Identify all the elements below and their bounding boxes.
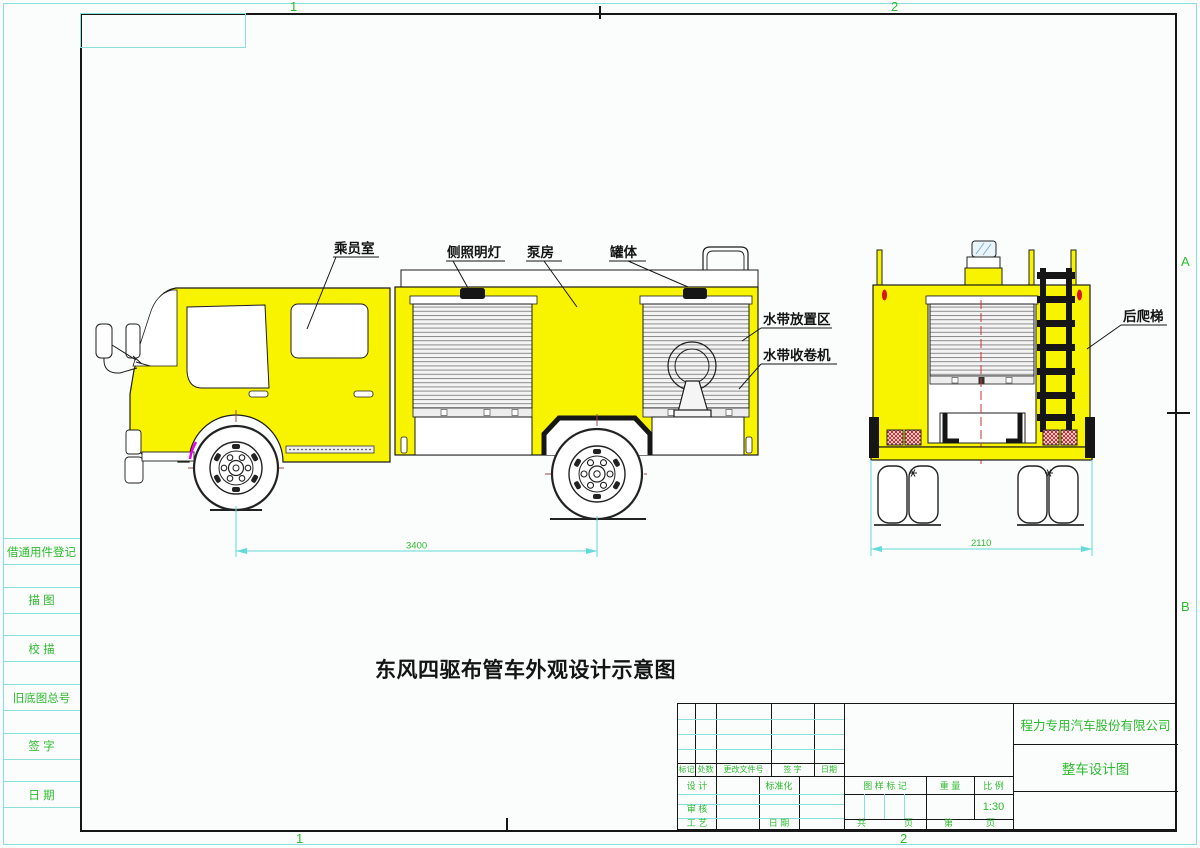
grid-line bbox=[678, 719, 844, 720]
dim-arrow bbox=[871, 546, 882, 552]
tail-light bbox=[887, 430, 903, 445]
grid-line bbox=[678, 749, 844, 750]
zone-marker-right-b: B bbox=[1181, 600, 1190, 613]
truck-body bbox=[395, 247, 758, 455]
mark-label: 图 样 标 记 bbox=[844, 776, 926, 794]
strip-blank bbox=[3, 565, 80, 588]
handrail-outer bbox=[703, 247, 748, 270]
side-lamp-1 bbox=[460, 288, 485, 299]
crew-cab-text: 乘员室 bbox=[333, 240, 375, 256]
roller-shutter-1 bbox=[413, 304, 532, 408]
beacon-collar bbox=[967, 257, 1000, 268]
bumper-cap-right bbox=[1085, 417, 1095, 458]
tire bbox=[878, 466, 907, 523]
front-step-lower bbox=[125, 457, 143, 483]
rev-header-sign: 签 字 bbox=[771, 763, 814, 776]
tire bbox=[1018, 466, 1047, 523]
pages-current-label: 第 bbox=[944, 816, 953, 829]
beacon-pedestal bbox=[965, 268, 1002, 285]
zone-marker-right-a: A bbox=[1181, 255, 1190, 268]
tank-text: 罐体 bbox=[609, 244, 638, 260]
width-value: 2110 bbox=[971, 538, 991, 549]
strip-label-signature: 签 字 bbox=[3, 734, 80, 760]
rear-cab-window bbox=[291, 304, 368, 358]
sill-handle bbox=[512, 410, 518, 416]
pages-current-unit: 页 bbox=[986, 816, 995, 829]
door-window bbox=[187, 305, 269, 388]
hose-reel-base bbox=[674, 410, 711, 417]
sill-handle bbox=[726, 410, 732, 416]
title-block: 标记 处数 更改文件号 签 字 日期 设 计 标准化 审 核 工 艺 日 期 图… bbox=[677, 703, 1177, 830]
zone-marker-top-1: 1 bbox=[290, 0, 297, 13]
cab-step bbox=[142, 452, 194, 461]
zone-marker-bottom-1: 1 bbox=[296, 832, 303, 845]
rear-wheels bbox=[874, 466, 1084, 525]
strip-blank bbox=[3, 760, 80, 783]
company-name: 程力专用汽车股份有限公司 bbox=[1013, 704, 1178, 744]
tail-light bbox=[905, 430, 921, 445]
strip-blank bbox=[3, 711, 80, 734]
date-label: 日 期 bbox=[759, 813, 799, 831]
standardization-label: 标准化 bbox=[759, 776, 799, 794]
tire bbox=[1049, 466, 1078, 523]
strip-blank bbox=[3, 614, 80, 637]
sill-handle bbox=[441, 410, 447, 416]
rev-header-date: 日期 bbox=[814, 763, 844, 776]
sill-handle bbox=[952, 378, 958, 384]
sill-handle bbox=[1006, 378, 1012, 384]
left-registration-strip: 借通用件登记 描 图 校 描 旧底图总号 签 字 日 期 bbox=[3, 538, 80, 830]
strip-blank bbox=[3, 808, 80, 830]
rear-roller-shutter bbox=[930, 304, 1034, 376]
mirror-outer bbox=[96, 324, 112, 358]
scale-label: 比 例 bbox=[974, 776, 1013, 794]
front-step-upper bbox=[126, 430, 141, 454]
strip-label-check-trace: 校 描 bbox=[3, 636, 80, 662]
label-rear-ladder: 后爬梯 bbox=[1087, 308, 1167, 349]
handrail-inner bbox=[707, 251, 744, 270]
pages-current-cell: 第 页 bbox=[926, 813, 1013, 831]
hose-area-text: 水带放置区 bbox=[763, 311, 831, 327]
side-view-drawing: 乘员室 侧照明灯 泵房 罐体 水带放置区 水带收卷机 bbox=[85, 235, 855, 565]
weight-label: 重 量 bbox=[926, 776, 974, 794]
pages-total-label: 共 bbox=[857, 816, 866, 829]
wheelbase-dimension: 3400 bbox=[236, 506, 597, 557]
pages-total-cell: 共 页 bbox=[844, 813, 926, 831]
sill-handle bbox=[484, 410, 490, 416]
tank-top-band bbox=[401, 270, 758, 287]
dim-arrow bbox=[586, 548, 597, 554]
door-handle-front bbox=[249, 391, 268, 397]
side-lamp-text: 侧照明灯 bbox=[447, 244, 501, 260]
zone-marker-top-2: 2 bbox=[891, 0, 898, 13]
drawing-caption: 东风四驱布管车外观设计示意图 bbox=[375, 654, 685, 682]
dim-arrow bbox=[1081, 546, 1092, 552]
grid-line bbox=[678, 734, 844, 735]
fold-tick-top bbox=[599, 6, 601, 19]
compartment-latch-left bbox=[401, 437, 407, 453]
rev-header-count: 处数 bbox=[695, 763, 716, 776]
grab-pole-left bbox=[877, 250, 882, 285]
drawing-sheet: 1 2 1 2 A B 借通用件登记 描 图 校 描 旧底图总号 签 字 日 期… bbox=[0, 0, 1200, 848]
rear-view-drawing: 2110 后爬梯 bbox=[855, 235, 1177, 565]
strip-label-borrow: 借通用件登记 bbox=[3, 539, 80, 565]
rev-header-mark: 标记 bbox=[678, 763, 695, 776]
registration-box bbox=[80, 13, 246, 48]
rear-ladder-text: 后爬梯 bbox=[1123, 308, 1164, 324]
rear-shutter-rail bbox=[926, 296, 1038, 304]
lower-compartment-right bbox=[652, 417, 744, 455]
grid-line bbox=[1013, 791, 1178, 792]
rim bbox=[569, 446, 625, 502]
fold-tick-bottom bbox=[506, 818, 508, 832]
grid-line bbox=[678, 794, 844, 795]
ladder-pole-left bbox=[1029, 250, 1034, 285]
strip-label-date: 日 期 bbox=[3, 782, 80, 808]
sill-handle bbox=[668, 410, 674, 416]
wheelbase-value: 3400 bbox=[406, 541, 427, 552]
strip-blank bbox=[3, 662, 80, 685]
side-lamp-2 bbox=[683, 288, 707, 299]
lower-compartment-left bbox=[415, 417, 532, 455]
warning-beacon bbox=[965, 241, 1002, 285]
marker-light-right bbox=[1077, 290, 1082, 301]
dim-arrow bbox=[236, 548, 247, 554]
pump-room-text: 泵房 bbox=[527, 244, 554, 260]
rim bbox=[210, 442, 262, 494]
grid-line bbox=[844, 704, 845, 831]
bumper-cap-left bbox=[869, 417, 879, 458]
drawing-name: 整车设计图 bbox=[1013, 744, 1178, 791]
rev-header-docno: 更改文件号 bbox=[716, 763, 771, 776]
tail-light bbox=[1043, 430, 1059, 445]
marker-light-left bbox=[882, 290, 887, 301]
mirror-inner bbox=[126, 324, 140, 358]
design-label: 设 计 bbox=[678, 776, 716, 794]
pages-total-unit: 页 bbox=[904, 816, 913, 829]
tail-light bbox=[1061, 430, 1077, 445]
zone-marker-bottom-2: 2 bbox=[900, 832, 907, 845]
compartment-latch-right bbox=[746, 437, 752, 453]
door-handle-rear bbox=[354, 391, 373, 397]
process-label: 工 艺 bbox=[678, 813, 716, 831]
leader-line bbox=[1087, 325, 1121, 349]
rear-bumper bbox=[871, 447, 1092, 460]
strip-label-trace: 描 图 bbox=[3, 588, 80, 614]
hose-reel-text: 水带收卷机 bbox=[763, 347, 831, 363]
strip-label-old-no: 旧底图总号 bbox=[3, 685, 80, 711]
